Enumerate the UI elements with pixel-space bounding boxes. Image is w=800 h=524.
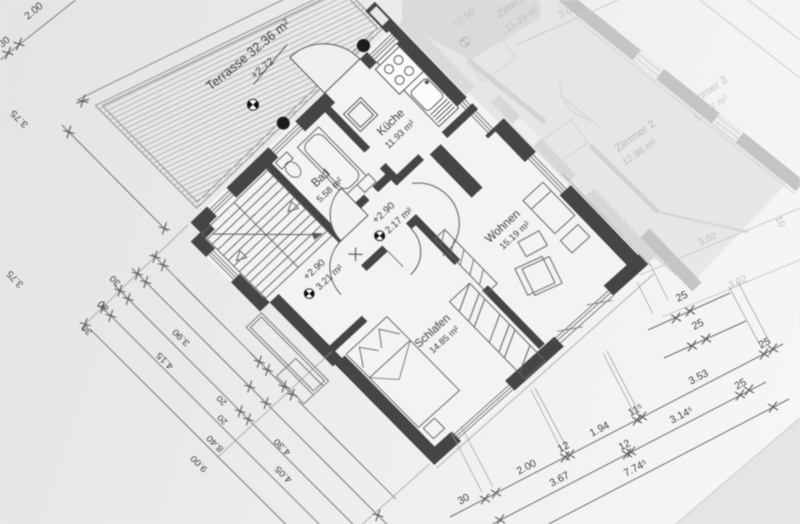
- svg-text:3.53: 3.53: [687, 367, 711, 387]
- svg-text:1.94: 1.94: [588, 419, 612, 439]
- svg-text:7.74⁵: 7.74⁵: [622, 457, 650, 479]
- svg-text:2.00: 2.00: [515, 457, 539, 477]
- svg-text:25: 25: [674, 289, 690, 305]
- svg-text:3.75: 3.75: [4, 268, 26, 290]
- svg-text:12: 12: [556, 439, 572, 455]
- svg-text:25: 25: [733, 376, 749, 392]
- svg-text:2.00: 2.00: [22, 0, 45, 22]
- svg-text:25: 25: [757, 335, 773, 351]
- svg-text:30: 30: [456, 491, 472, 507]
- svg-text:30: 30: [0, 34, 13, 50]
- svg-text:3.67: 3.67: [548, 469, 572, 489]
- svg-text:25: 25: [690, 317, 706, 333]
- svg-text:3.14⁵: 3.14⁵: [668, 404, 696, 426]
